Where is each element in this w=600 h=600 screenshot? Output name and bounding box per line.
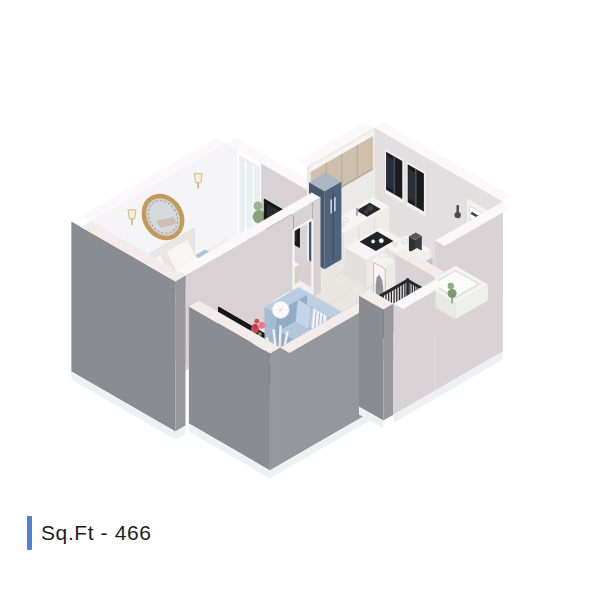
floorplan-3d-render xyxy=(0,0,600,600)
stairs-front-wall xyxy=(359,290,393,429)
accent-bar xyxy=(27,516,32,550)
page: Sq.Ft - 466 xyxy=(0,0,600,600)
sqft-label-row: Sq.Ft - 466 xyxy=(27,516,151,550)
round-pillow xyxy=(272,301,289,318)
sqft-label: Sq.Ft - 466 xyxy=(41,521,151,545)
